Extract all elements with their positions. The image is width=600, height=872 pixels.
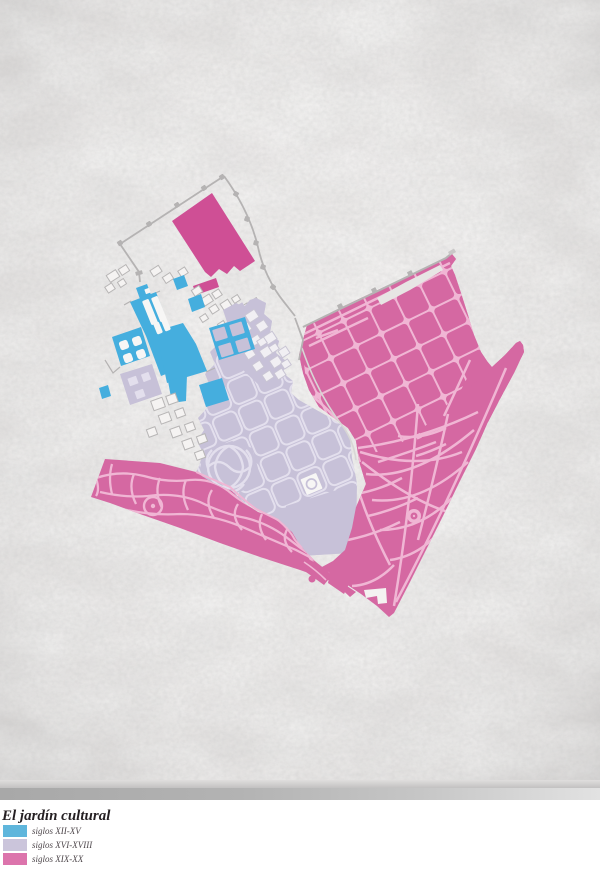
svg-text:El jardín cultural: El jardín cultural — [1, 808, 111, 824]
svg-text:siglos XII-XV: siglos XII-XV — [32, 826, 82, 836]
svg-text:siglos XIX-XX: siglos XIX-XX — [32, 854, 84, 864]
svg-text:siglos XVI-XVIII: siglos XVI-XVIII — [32, 840, 93, 850]
